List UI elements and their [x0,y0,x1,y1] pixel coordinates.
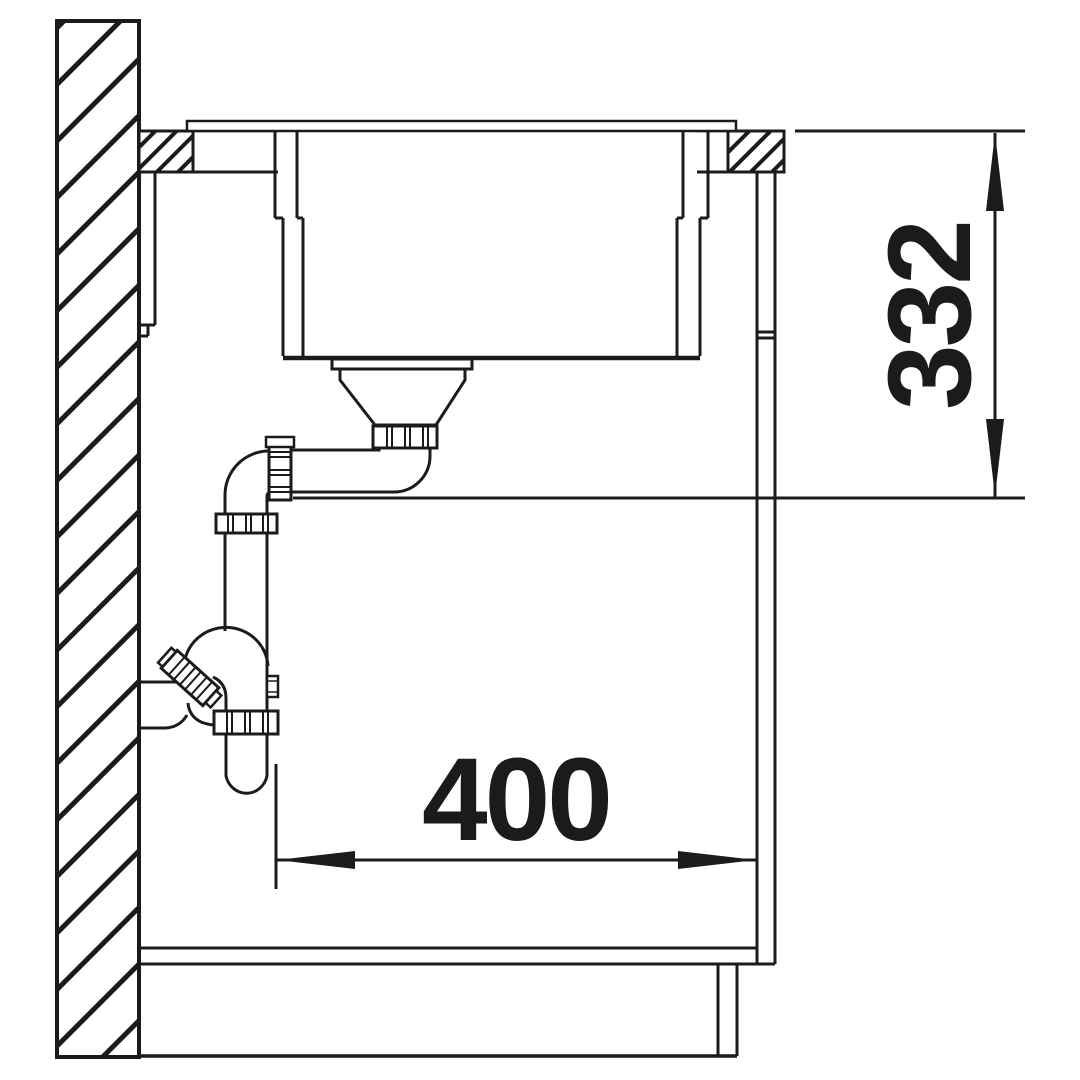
arrowhead-left-icon [277,851,355,869]
wall-outlet-pipe [139,682,187,728]
horizontal-pipe-top [289,447,379,450]
arrowhead-down-icon [986,419,1004,496]
countertop-left-section [139,131,278,172]
siphon-dome-arc [184,627,268,671]
arrowhead-up-icon [986,133,1004,211]
sink-rim [187,121,736,131]
standpipe-compression-nut [216,514,277,533]
pipe-clip [267,676,278,697]
arrowhead-right-icon [678,851,756,869]
elbow-union-nut [266,437,294,500]
siphon-compression-nut [214,711,278,734]
strainer-cup [340,369,465,425]
cabinet-back-filler [139,172,155,336]
cabinet-carcass [139,172,775,1056]
technical-drawing: 332 400 [0,0,1080,1080]
standpipe-left-wall [225,451,269,631]
dim-label-400: 400 [422,741,610,859]
siphon-cup [226,734,267,793]
cabinet-plinth-foot [718,964,737,1056]
countertop-right-section [697,131,784,172]
countertop [139,131,784,172]
drawing-canvas [0,0,1080,1080]
cabinet-bottom-shelf [139,948,775,964]
wall-hatch-section [57,21,139,1057]
dim-label-332: 332 [871,222,989,410]
strainer-locknut [373,426,437,448]
strainer-assembly [332,359,472,448]
sink-bowl [275,131,708,358]
cabinet-side-panel [757,172,775,964]
